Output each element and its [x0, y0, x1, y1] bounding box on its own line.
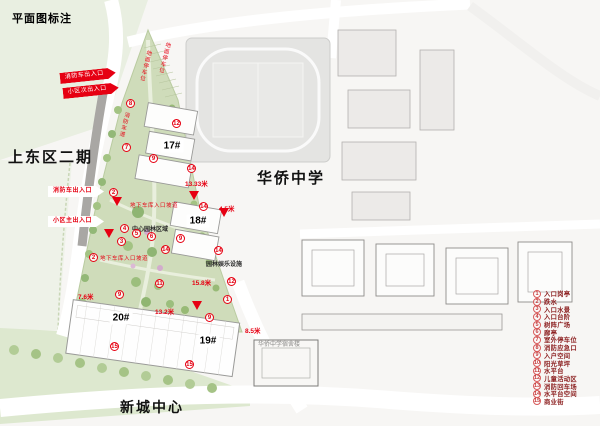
school-long-building	[302, 314, 502, 330]
plan-marker-14: 14	[161, 245, 170, 254]
area-label-school: 华侨中学	[257, 167, 325, 188]
plan-marker-5: 5	[132, 229, 141, 238]
note-garage-ramp-2: 地下车库入口坡道	[100, 254, 148, 262]
entrance-triangle	[189, 191, 199, 200]
plan-marker-1: 1	[223, 295, 232, 304]
road-north-branch	[331, 0, 336, 58]
dimension-13-2: 13.2米	[155, 306, 174, 316]
sports-field	[186, 38, 330, 162]
note-amenities: 园林娱乐设施	[206, 259, 242, 268]
building-label-17: 17#	[161, 140, 184, 153]
legend-number: 1	[533, 290, 541, 298]
plan-marker-9: 9	[115, 290, 124, 299]
legend-number: 7	[533, 336, 541, 344]
plan-marker-14: 14	[199, 202, 208, 211]
legend-number: 13	[533, 382, 541, 390]
plan-marker-12: 12	[172, 119, 181, 128]
entrance-triangle	[112, 197, 122, 206]
legend-list: 1入口岗亭2跌水3入口水景4入口台阶5树阵广场6廊亭7室外停车位8消防应急口9入…	[533, 290, 577, 405]
legend-label: 商业街	[544, 397, 564, 406]
entrance-triangle	[192, 301, 202, 310]
legend-number: 10	[533, 359, 541, 367]
plan-marker-8: 8	[126, 99, 135, 108]
plan-marker-14: 14	[187, 164, 196, 173]
dimension-8-5: 8.5米	[245, 325, 261, 335]
plan-marker-14: 14	[214, 246, 223, 255]
note-garage-ramp-1: 地下车库入口坡道	[130, 201, 178, 209]
plan-marker-3: 3	[117, 237, 126, 246]
dimension-7-6: 7.6米	[78, 291, 94, 301]
area-label-dormitory: 华侨中学宿舍楼	[258, 339, 300, 348]
legend-item-15: 15商业街	[533, 398, 577, 406]
plan-marker-9: 9	[149, 154, 158, 163]
building-label-18: 18#	[187, 215, 210, 228]
site-plan-page: 平面图标注 上东区二期 华侨中学 新城中心 华侨中学宿舍楼 消防车出入口 小区次…	[0, 0, 600, 426]
plan-marker-2: 2	[109, 188, 118, 197]
page-title: 平面图标注	[12, 10, 72, 26]
legend-number: 15	[533, 397, 541, 405]
plan-marker-4: 4	[120, 224, 129, 233]
plan-marker-6: 6	[147, 232, 156, 241]
entrance-triangle	[219, 208, 229, 217]
site-plan-map	[0, 0, 600, 426]
plan-marker-11: 11	[155, 279, 164, 288]
entrance-arrow-main: 小区主出入口	[48, 216, 104, 227]
plan-marker-12: 12	[227, 277, 236, 286]
dimension-15-8: 15.8米	[192, 277, 211, 287]
dimension-13-33: 13.33米	[185, 178, 208, 188]
area-label-center: 新城中心	[120, 397, 184, 417]
building-label-20: 20#	[110, 312, 133, 325]
plan-marker-9: 9	[176, 234, 185, 243]
plan-marker-15: 15	[185, 360, 194, 369]
plan-marker-2: 2	[89, 253, 98, 262]
area-label-phase2: 上东区二期	[8, 146, 93, 167]
plan-marker-7: 7	[122, 143, 131, 152]
legend-number: 4	[533, 313, 541, 321]
plan-marker-9: 9	[205, 313, 214, 322]
entrance-triangle	[104, 229, 114, 238]
building-label-19: 19#	[197, 335, 220, 348]
entrance-arrow-fire-mid: 消防车出入口	[48, 186, 104, 197]
plan-marker-15: 15	[110, 342, 119, 351]
